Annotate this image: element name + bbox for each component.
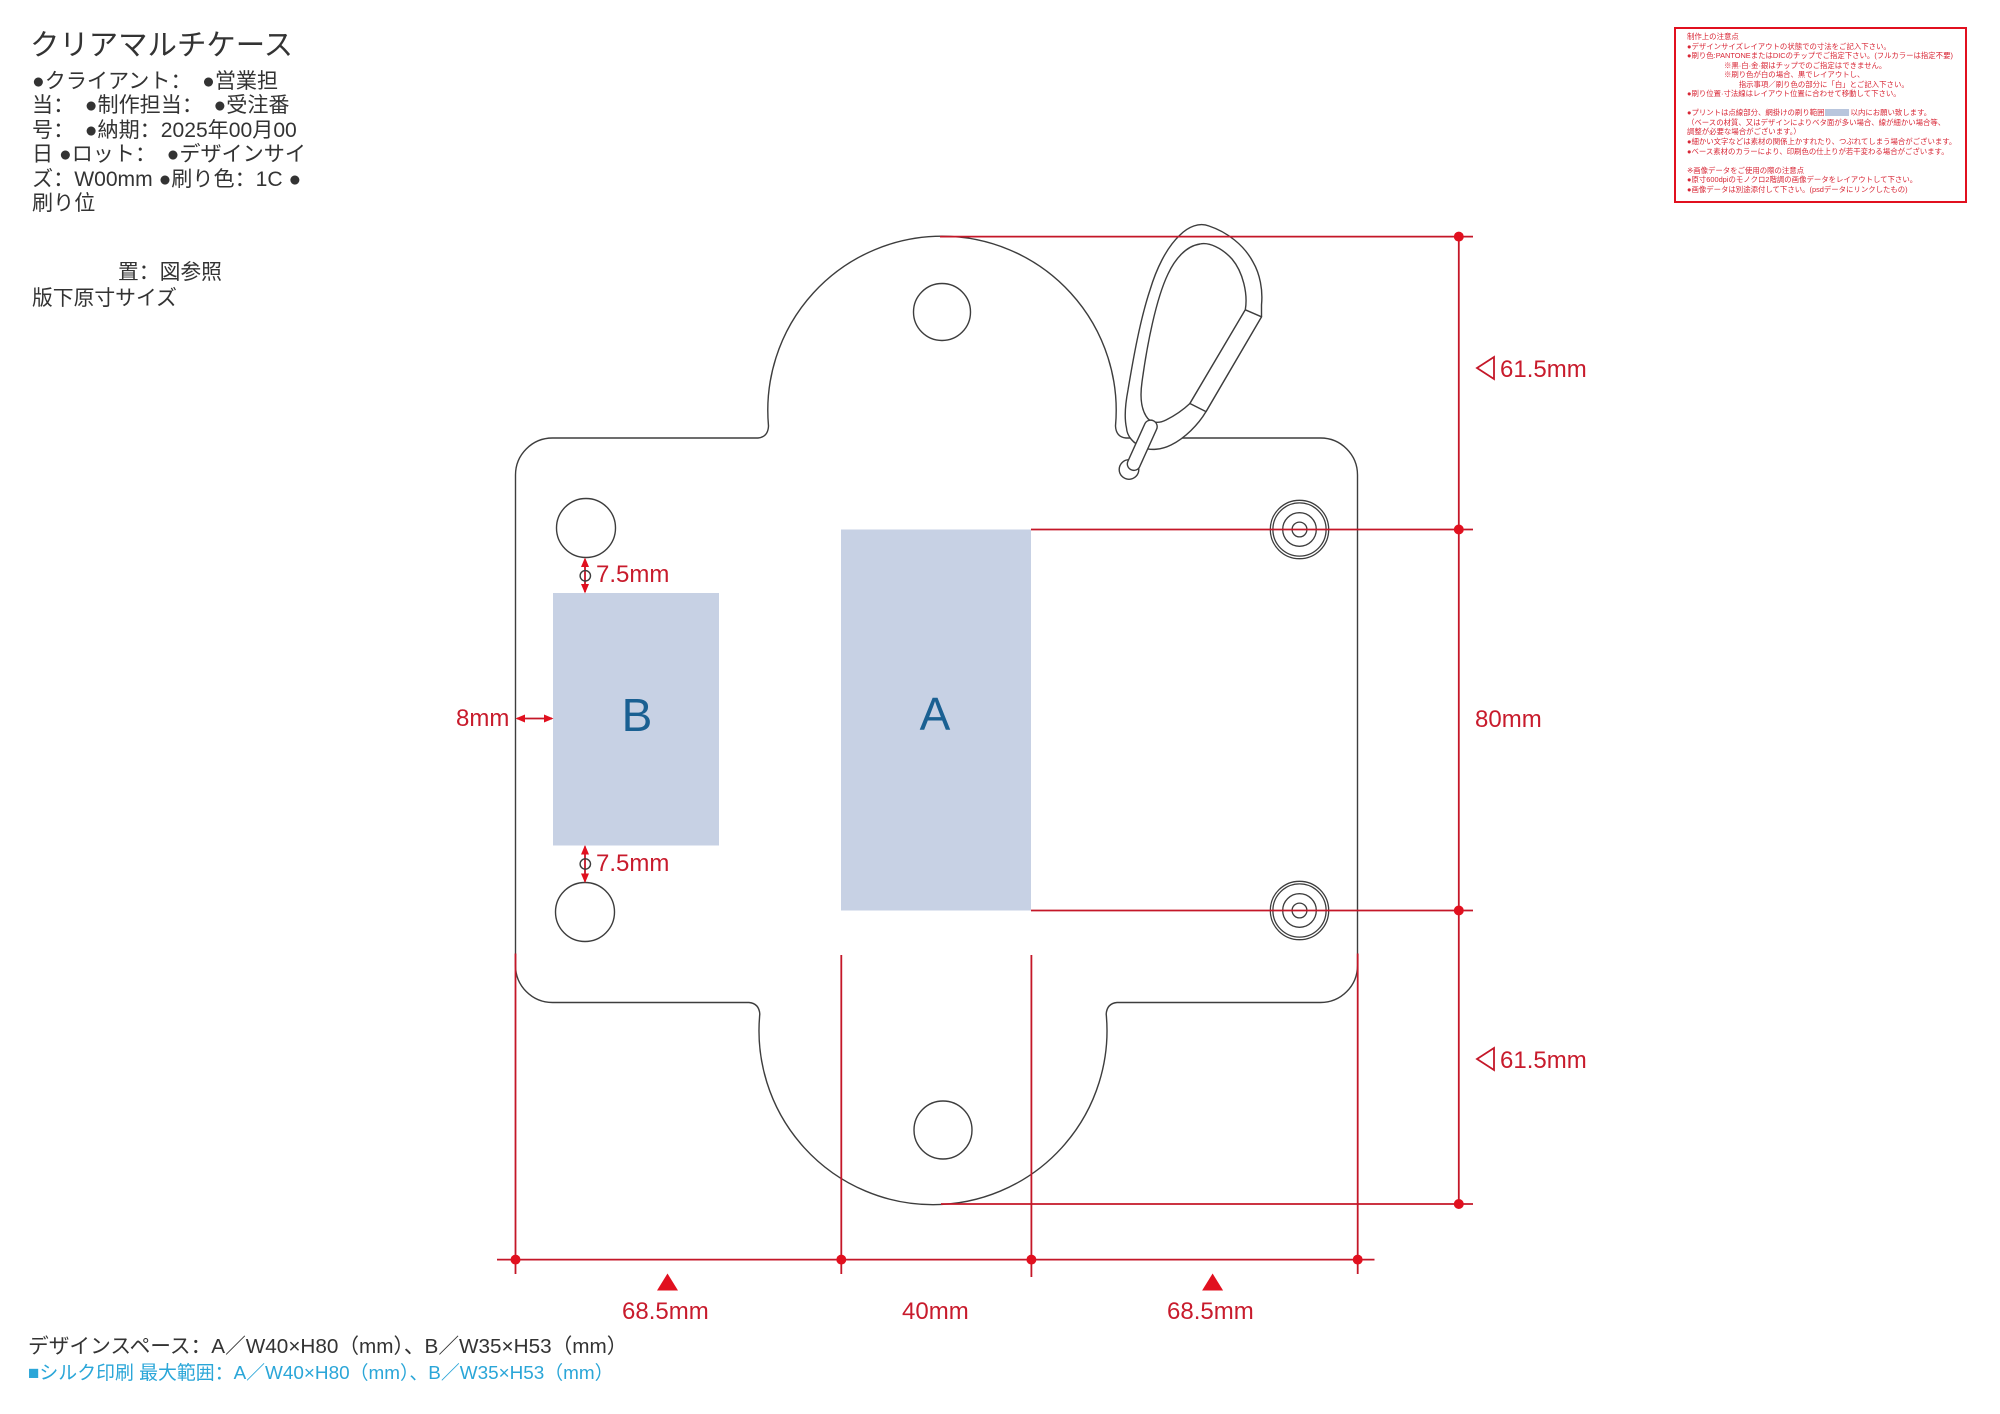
svg-text:68.5mm: 68.5mm — [622, 1298, 709, 1325]
svg-text:A: A — [920, 688, 951, 740]
svg-text:61.5mm: 61.5mm — [1500, 1047, 1587, 1074]
svg-text:61.5mm: 61.5mm — [1500, 356, 1587, 383]
svg-text:8mm: 8mm — [456, 705, 509, 732]
svg-text:68.5mm: 68.5mm — [1167, 1298, 1254, 1325]
svg-text:7.5mm: 7.5mm — [596, 561, 669, 588]
svg-text:80mm: 80mm — [1475, 706, 1542, 733]
svg-text:40mm: 40mm — [902, 1298, 969, 1325]
svg-text:7.5mm: 7.5mm — [596, 850, 669, 877]
svg-text:B: B — [622, 689, 653, 741]
